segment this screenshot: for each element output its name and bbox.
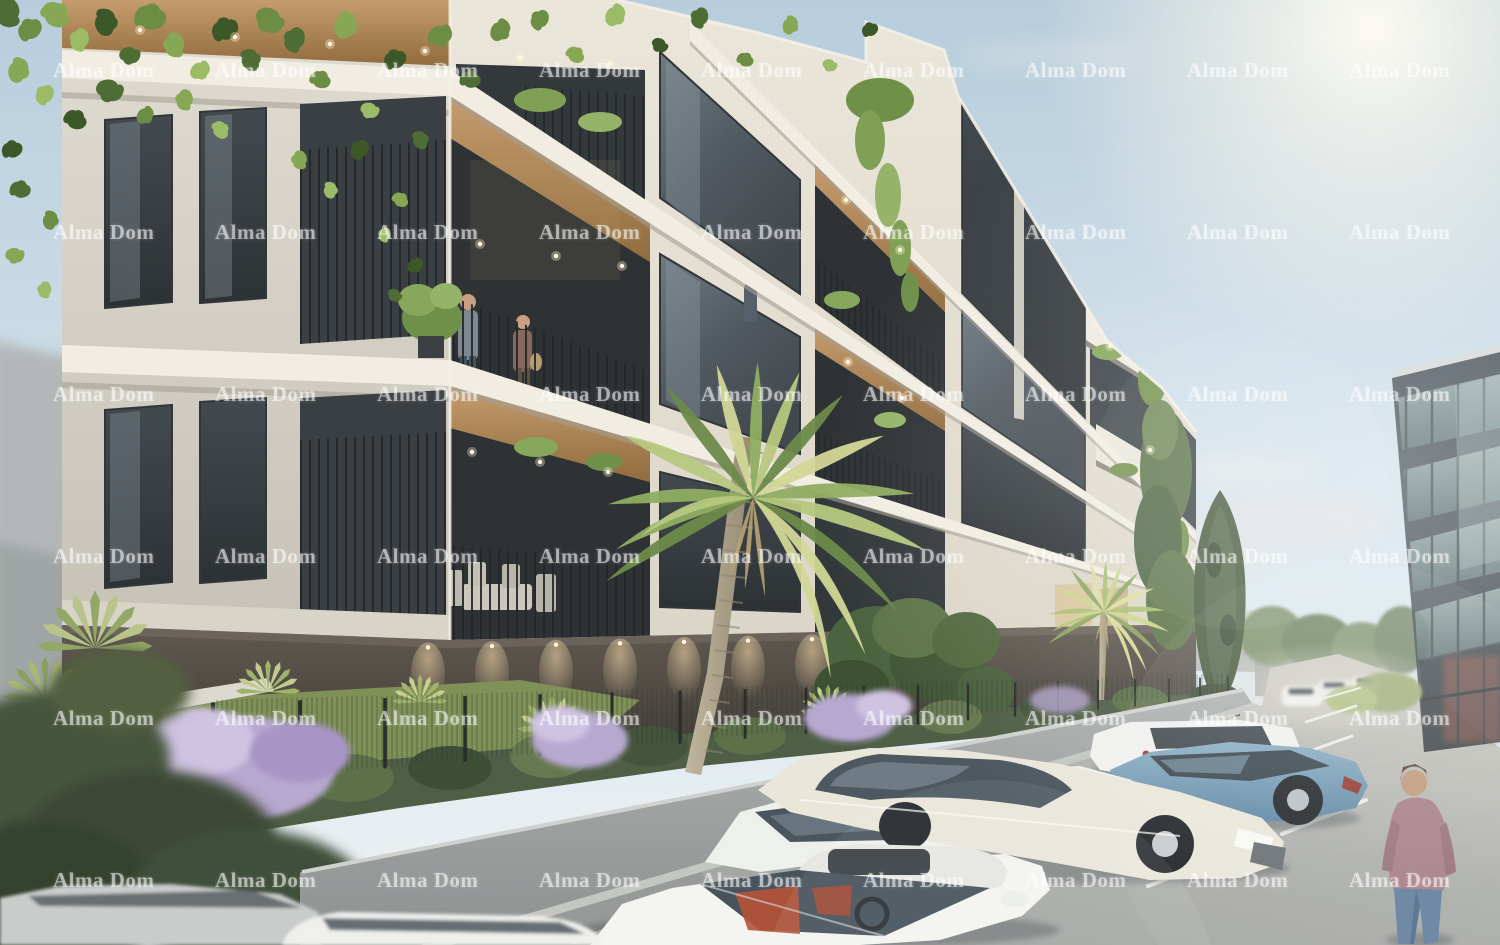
rendering-scene	[0, 0, 1500, 945]
architectural-rendering: Alma DomAlma DomAlma DomAlma DomAlma Dom…	[0, 0, 1500, 945]
